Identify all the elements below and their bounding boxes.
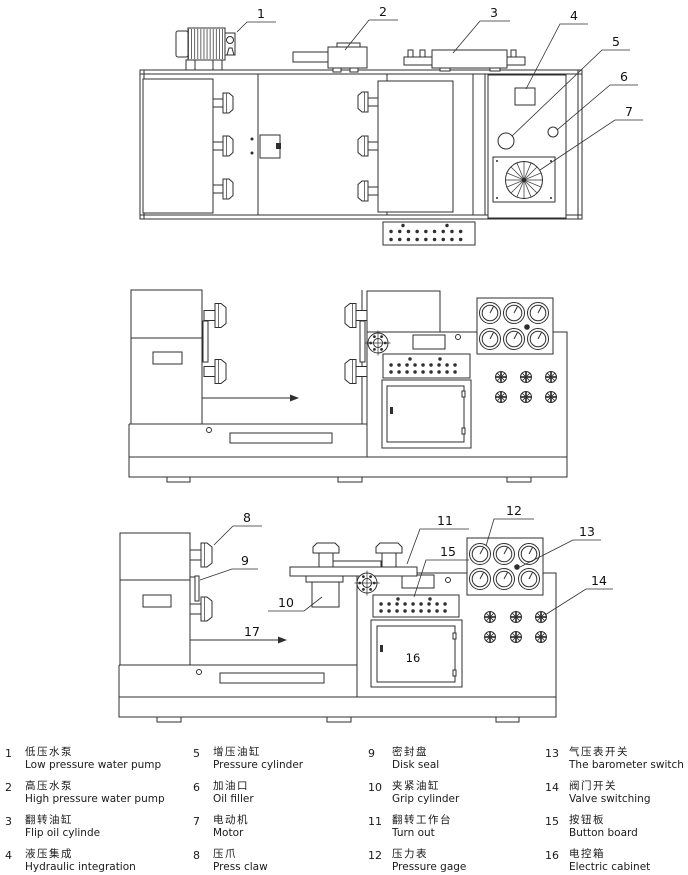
callout-label-1: 1 bbox=[257, 6, 265, 21]
left-clamp-plate bbox=[143, 79, 233, 213]
legend-item-2: 2 高压水泵 High pressure water pump bbox=[5, 780, 165, 806]
legend-label-en: High pressure water pump bbox=[25, 793, 165, 806]
legend-label-zh: 翻转油缸 bbox=[25, 814, 100, 827]
legend-label-zh: 液压集成 bbox=[25, 848, 136, 861]
legend-label-en: The barometer switch bbox=[569, 759, 684, 772]
work-table-box bbox=[367, 291, 440, 332]
legend-label-en: Grip cylinder bbox=[392, 793, 459, 806]
grip-cylinder-10 bbox=[306, 576, 343, 607]
legend-label-zh: 增压油缸 bbox=[213, 746, 303, 759]
legend-item-4: 4 液压集成 Hydraulic integration bbox=[5, 848, 136, 874]
legend-number: 9 bbox=[368, 746, 387, 772]
button-board-front-view bbox=[383, 354, 470, 378]
legend-label-en: Electric cabinet bbox=[569, 861, 650, 874]
top-view: 1 2 3 4 5 6 7 bbox=[140, 4, 643, 245]
callout-label-6: 6 bbox=[620, 69, 628, 84]
legend-item-7: 7 电动机 Motor bbox=[193, 814, 249, 840]
front-view bbox=[129, 290, 567, 482]
flip-oil-cylinder bbox=[404, 50, 525, 71]
legend-number: 3 bbox=[5, 814, 20, 840]
legend-item-11: 11 翻转工作台 Turn out bbox=[368, 814, 452, 840]
legend-number: 2 bbox=[5, 780, 20, 806]
button-board-15 bbox=[373, 595, 459, 617]
legend-label-zh: 压力表 bbox=[392, 848, 466, 861]
electric-cabinet-front-view bbox=[382, 380, 471, 448]
callout-label-7: 7 bbox=[625, 104, 633, 119]
legend-label-en: Disk seal bbox=[392, 759, 439, 772]
legend-item-3: 3 翻转油缸 Flip oil cylinde bbox=[5, 814, 100, 840]
front-view-flipped-table: 16 bbox=[119, 503, 613, 722]
button-board-top-view bbox=[383, 222, 475, 245]
press-claw-8 bbox=[190, 543, 212, 567]
callout-label-14: 14 bbox=[591, 573, 607, 588]
legend-number: 15 bbox=[545, 814, 564, 840]
legend-number: 5 bbox=[193, 746, 208, 772]
legend-label-en: Turn out bbox=[392, 827, 452, 840]
legend-label-zh: 电动机 bbox=[213, 814, 249, 827]
legend-number: 7 bbox=[193, 814, 208, 840]
legend-number: 6 bbox=[193, 780, 208, 806]
machine-drawing-page: 1 2 3 4 5 6 7 bbox=[0, 0, 688, 875]
barometer-switch-13 bbox=[514, 564, 520, 570]
gauge-panel-front-view bbox=[477, 298, 553, 354]
press-claw-lower bbox=[190, 597, 212, 621]
legend-item-9: 9 密封盘 Disk seal bbox=[368, 746, 439, 772]
legend-number: 12 bbox=[368, 848, 387, 874]
cabinet-handle bbox=[390, 407, 393, 414]
control-cabinet-top-view bbox=[488, 75, 566, 218]
center-bracket bbox=[251, 135, 282, 158]
disk-seal-9 bbox=[190, 576, 199, 601]
legend-label-zh: 低压水泵 bbox=[25, 746, 161, 759]
legend-label-zh: 气压表开关 bbox=[569, 746, 684, 759]
legend-number: 11 bbox=[368, 814, 387, 840]
control-cabinet-front-view bbox=[366, 291, 568, 457]
legend-label-en: Valve switching bbox=[569, 793, 651, 806]
legend-label-zh: 电控箱 bbox=[569, 848, 650, 861]
callout-label-5: 5 bbox=[612, 34, 620, 49]
high-pressure-water-pump bbox=[293, 43, 367, 72]
legend-label-zh: 按钮板 bbox=[569, 814, 638, 827]
legend-item-15: 15 按钮板 Button board bbox=[545, 814, 638, 840]
electric-cabinet-16: 16 bbox=[371, 620, 462, 687]
callout-label-11: 11 bbox=[437, 513, 453, 528]
legend-label-zh: 夹紧油缸 bbox=[392, 780, 459, 793]
headstock-front-view bbox=[131, 290, 202, 424]
legend-item-5: 5 增压油缸 Pressure cylinder bbox=[193, 746, 303, 772]
legend-label-en: Pressure cylinder bbox=[213, 759, 303, 772]
legend-label-en: Flip oil cylinde bbox=[25, 827, 100, 840]
callout-label-16: 16 bbox=[406, 651, 421, 665]
callout-label-17: 17 bbox=[244, 624, 260, 639]
legend-item-13: 13 气压表开关 The barometer switch bbox=[545, 746, 684, 772]
legend-label-zh: 加油口 bbox=[213, 780, 254, 793]
legend-item-6: 6 加油口 Oil filler bbox=[193, 780, 254, 806]
barometer-switch-front-view bbox=[524, 324, 530, 330]
legend-item-1: 1 低压水泵 Low pressure water pump bbox=[5, 746, 161, 772]
right-clamp-plate bbox=[358, 81, 453, 212]
legend-label-en: Hydraulic integration bbox=[25, 861, 136, 874]
legend-label-zh: 翻转工作台 bbox=[392, 814, 452, 827]
legend-label-en: Low pressure water pump bbox=[25, 759, 161, 772]
legend-label-zh: 密封盘 bbox=[392, 746, 439, 759]
legend-number: 1 bbox=[5, 746, 20, 772]
legend-item-8: 8 压爪 Press claw bbox=[193, 848, 268, 874]
low-pressure-water-pump bbox=[176, 28, 235, 70]
legend-label-en: Motor bbox=[213, 827, 249, 840]
legend-item-10: 10 夹紧油缸 Grip cylinder bbox=[368, 780, 459, 806]
callout-label-15: 15 bbox=[440, 544, 456, 559]
headstock-flipped-view bbox=[120, 533, 190, 665]
legend-label-en: Oil filler bbox=[213, 793, 254, 806]
legend-number: 4 bbox=[5, 848, 20, 874]
legend-number: 13 bbox=[545, 746, 564, 772]
callout-label-9: 9 bbox=[241, 553, 249, 568]
flip-work-table-11 bbox=[290, 543, 417, 576]
callout-label-12: 12 bbox=[506, 503, 522, 518]
callout-label-3: 3 bbox=[490, 5, 498, 20]
callout-label-8: 8 bbox=[243, 510, 251, 525]
callout-label-10: 10 bbox=[278, 595, 294, 610]
press-claws-front-view bbox=[203, 304, 226, 384]
legend-item-14: 14 阀门开关 Valve switching bbox=[545, 780, 651, 806]
legend-label-zh: 压爪 bbox=[213, 848, 268, 861]
legend-number: 14 bbox=[545, 780, 564, 806]
tailstock-front-view bbox=[345, 290, 367, 424]
callout-label-2: 2 bbox=[379, 4, 387, 19]
legend-number: 8 bbox=[193, 848, 208, 874]
cabinet-handle bbox=[380, 645, 383, 652]
legend-number: 16 bbox=[545, 848, 564, 874]
legend-number: 10 bbox=[368, 780, 387, 806]
legend-label-en: Press claw bbox=[213, 861, 268, 874]
callout-label-4: 4 bbox=[570, 8, 578, 23]
legend-label-zh: 高压水泵 bbox=[25, 780, 165, 793]
legend-item-16: 16 电控箱 Electric cabinet bbox=[545, 848, 650, 874]
legend-label-en: Button board bbox=[569, 827, 638, 840]
gauge-panel-12 bbox=[467, 538, 543, 595]
callout-label-13: 13 bbox=[579, 524, 595, 539]
technical-drawing: 1 2 3 4 5 6 7 bbox=[0, 0, 688, 745]
legend-label-en: Pressure gage bbox=[392, 861, 466, 874]
disk-seal-front-view bbox=[203, 321, 208, 362]
legend-label-zh: 阀门开关 bbox=[569, 780, 651, 793]
legend-item-12: 12 压力表 Pressure gage bbox=[368, 848, 466, 874]
